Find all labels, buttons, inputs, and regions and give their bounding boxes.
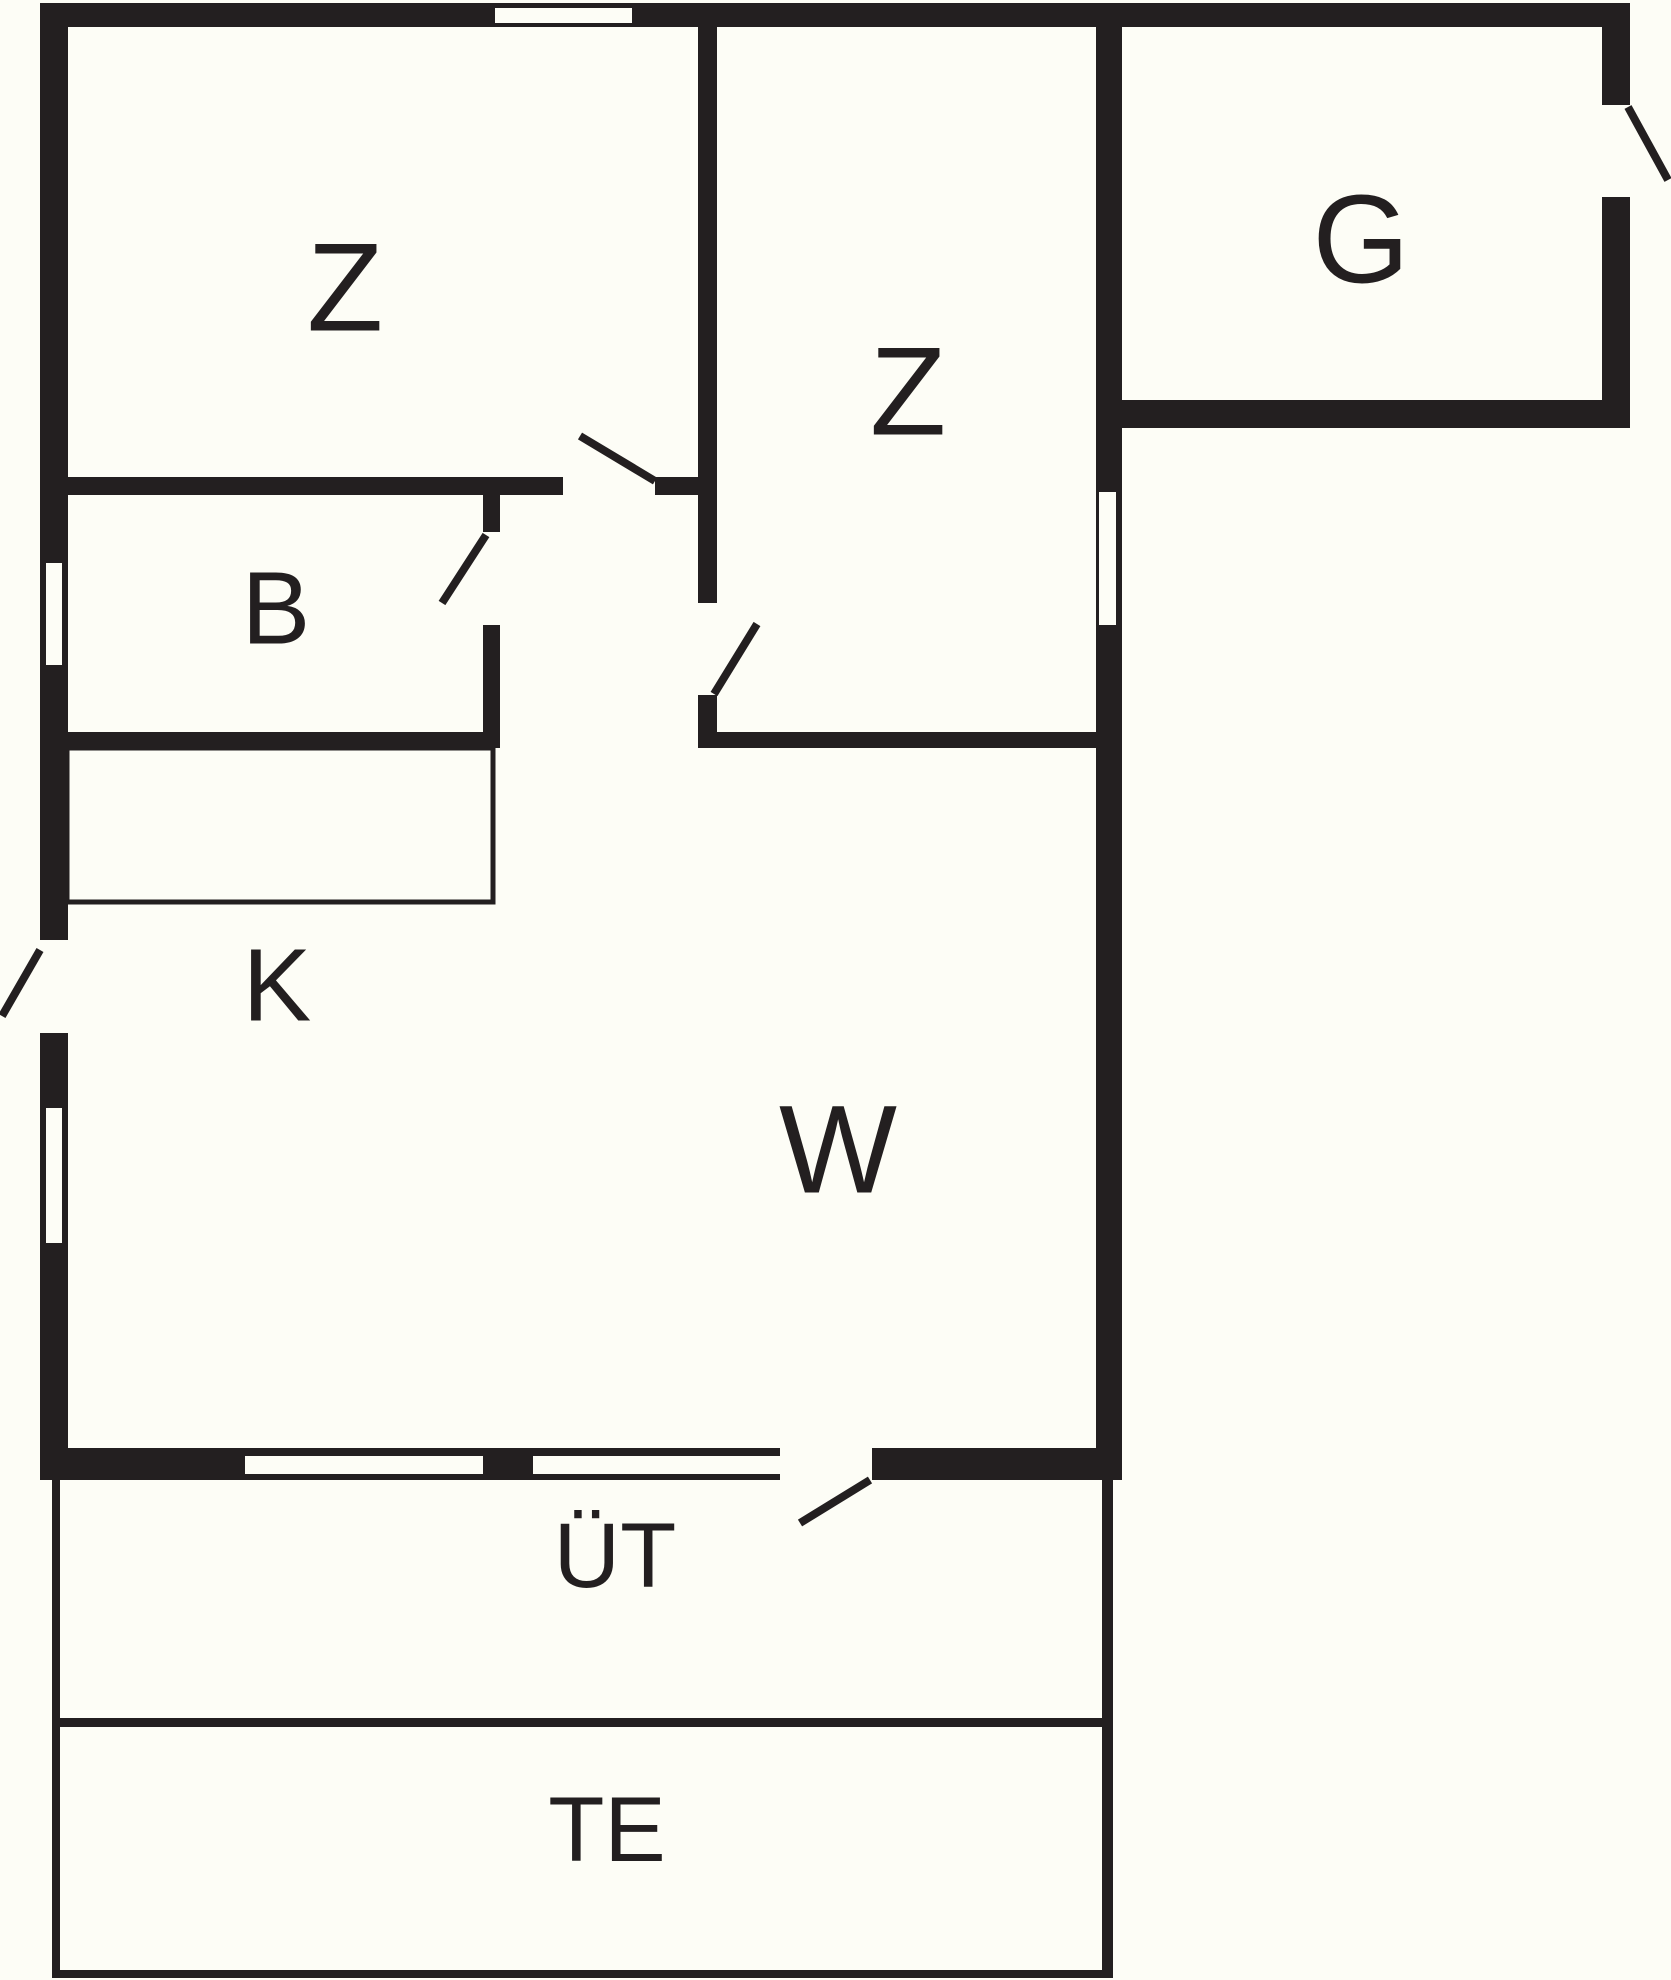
wall-outer-top (40, 3, 1630, 27)
wall-z-middle-bottom (717, 732, 1096, 748)
room-label-z-middle: Z (870, 330, 946, 455)
room-label-ut: ÜT (554, 1510, 677, 1602)
kitchen-counter (67, 748, 493, 902)
room-label-g: G (1312, 178, 1409, 303)
wall-g-right (1602, 27, 1630, 428)
door-opening-hall-to-z-left (563, 477, 655, 495)
wall-divider-z-z-upper (698, 27, 717, 603)
door-opening-g-exterior (1602, 105, 1630, 197)
door-swing-left-exit (2, 950, 40, 1016)
window-top-z-left (495, 8, 632, 23)
door-swing-z-left (580, 436, 655, 481)
window-left-b (46, 563, 62, 665)
wall-b-right-upper (483, 495, 500, 532)
door-swing-terrace (800, 1480, 870, 1523)
room-label-k: K (243, 934, 312, 1037)
door-opening-left-exterior (40, 940, 68, 1033)
wall-outer-left (40, 3, 68, 1480)
terrace-divider (60, 1718, 1102, 1727)
window-right-z-middle (1099, 492, 1116, 625)
window-bottom-2 (533, 1456, 780, 1474)
room-label-te: TE (548, 1784, 666, 1876)
window-bottom-1 (245, 1456, 483, 1474)
wall-z-bottom-left-part (68, 477, 563, 495)
room-label-z-left: Z (307, 226, 383, 351)
wall-divider-z-z-lower (698, 695, 717, 748)
door-swing-z-middle (714, 624, 757, 694)
door-opening-hall-to-z-middle (698, 603, 717, 695)
terrace-right-edge (1102, 1480, 1113, 1978)
window-left-w (46, 1108, 62, 1243)
door-swing-g-exit (1628, 107, 1668, 180)
door-opening-w-to-terrace (780, 1448, 872, 1480)
wall-g-bottom (1120, 400, 1630, 428)
terrace-left-edge (52, 1480, 60, 1975)
door-opening-hall-to-b (483, 532, 500, 625)
wall-b-right-lower (483, 625, 500, 748)
door-swing-b (442, 535, 486, 603)
wall-z-bottom-right-part (655, 477, 698, 495)
room-label-b: B (242, 557, 311, 660)
room-label-w: W (779, 1088, 897, 1213)
floorplan-canvas: ZZGBKWÜTTE (0, 0, 1671, 1980)
wall-right-main (1096, 27, 1122, 1480)
terrace-bottom-edge (52, 1970, 1113, 1978)
